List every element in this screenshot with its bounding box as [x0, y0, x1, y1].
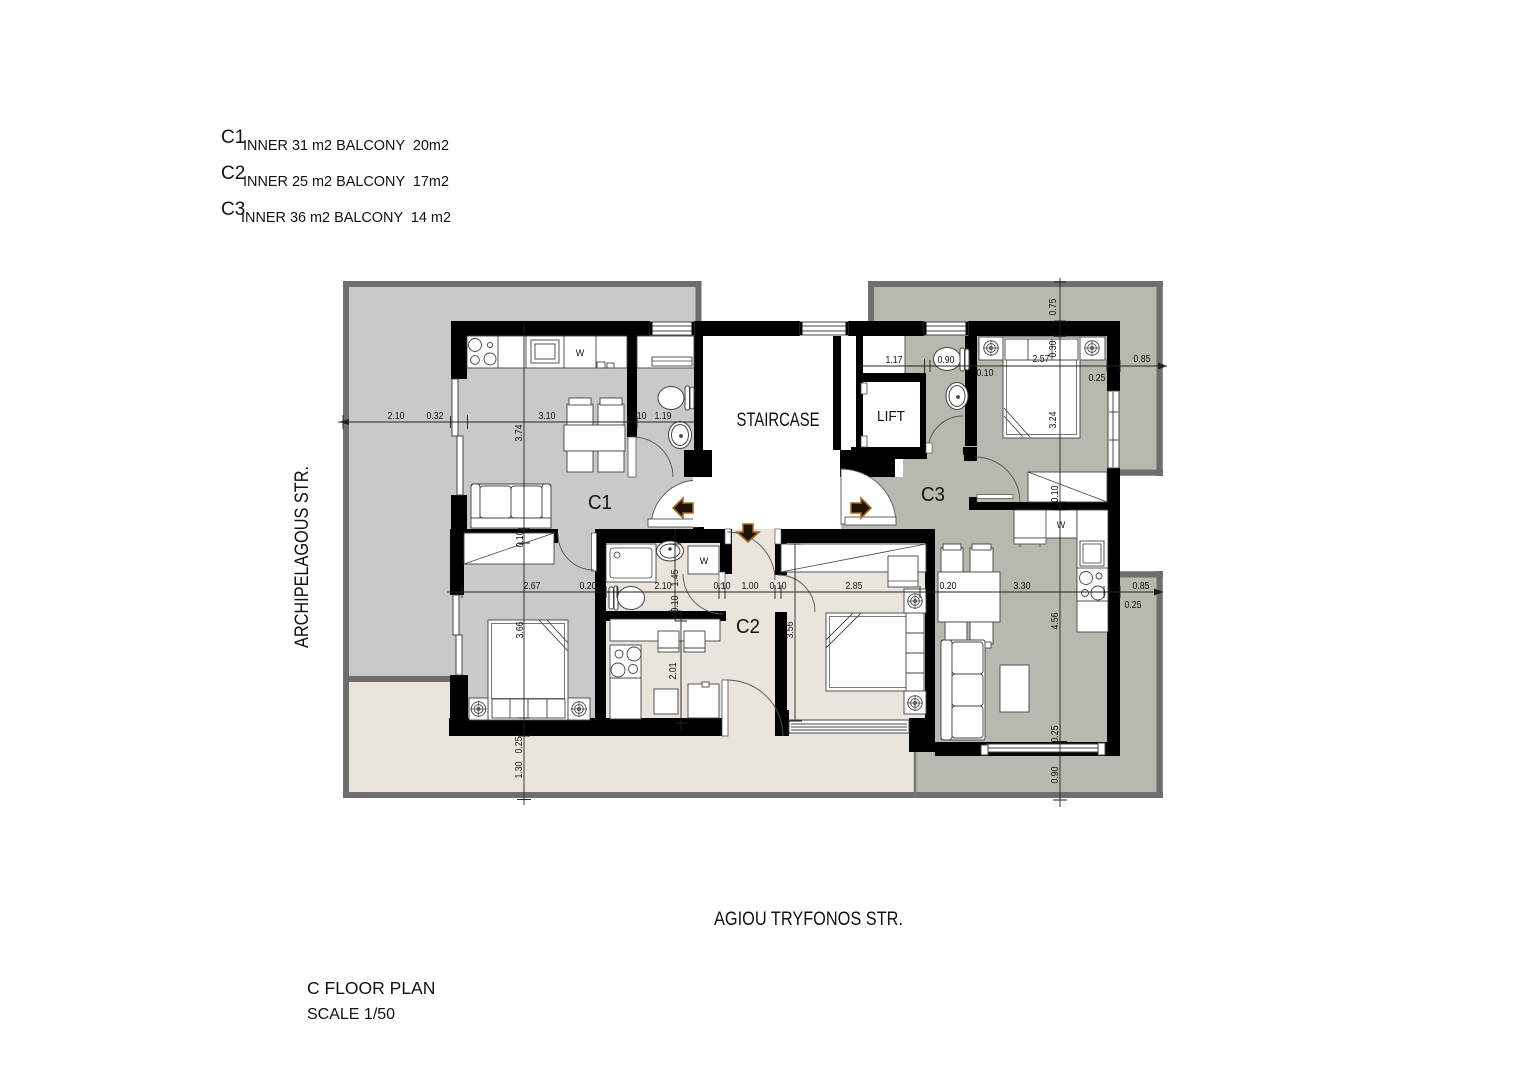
svg-text:C1: C1 — [221, 127, 245, 148]
svg-text:INNER 36 m2 BALCONY 14 m2: INNER 36 m2 BALCONY 14 m2 — [241, 209, 451, 226]
svg-text:2.01: 2.01 — [668, 662, 679, 679]
svg-text:0.90: 0.90 — [938, 355, 955, 366]
svg-text:0.30: 0.30 — [1048, 340, 1059, 357]
svg-text:0.85: 0.85 — [1134, 354, 1151, 365]
svg-text:3.10: 3.10 — [539, 411, 556, 422]
svg-text:C FLOOR PLAN: C FLOOR PLAN — [307, 978, 435, 998]
svg-text:1.17: 1.17 — [886, 355, 903, 366]
svg-text:1.00: 1.00 — [742, 581, 759, 592]
svg-text:0.25: 0.25 — [1125, 600, 1142, 611]
svg-text:0.25: 0.25 — [1050, 725, 1061, 742]
svg-text:W: W — [576, 348, 585, 358]
svg-text:C2: C2 — [736, 616, 760, 638]
svg-text:1.30: 1.30 — [514, 761, 525, 778]
svg-text:INNER 25 m2 BALCONY 17m2: INNER 25 m2 BALCONY 17m2 — [243, 173, 449, 190]
svg-text:C1: C1 — [588, 492, 612, 514]
svg-text:0.10: 0.10 — [1050, 485, 1061, 502]
svg-text:0.20: 0.20 — [940, 581, 957, 592]
svg-text:W: W — [700, 556, 709, 566]
svg-text:INNER 31 m2 BALCONY 20m2: INNER 31 m2 BALCONY 20m2 — [243, 137, 449, 154]
svg-text:3.56: 3.56 — [785, 621, 796, 638]
svg-text:1.45: 1.45 — [670, 569, 681, 586]
svg-text:0.10: 0.10 — [977, 368, 994, 379]
svg-text:3.24: 3.24 — [1048, 411, 1059, 428]
svg-text:0.85: 0.85 — [1133, 581, 1150, 592]
svg-text:ARCHIPELAGOUS STR.: ARCHIPELAGOUS STR. — [292, 466, 313, 648]
svg-text:0.90: 0.90 — [1050, 766, 1061, 783]
svg-text:SCALE 1/50: SCALE 1/50 — [307, 1006, 395, 1023]
svg-text:0.75: 0.75 — [1048, 298, 1059, 315]
svg-text:0.10: 0.10 — [714, 581, 731, 592]
svg-text:2.10: 2.10 — [388, 411, 405, 422]
svg-text:0.10: 0.10 — [515, 530, 526, 547]
svg-text:C3: C3 — [921, 484, 945, 506]
svg-text:LIFT: LIFT — [877, 408, 905, 425]
svg-text:0.10: 0.10 — [670, 595, 681, 612]
svg-text:STAIRCASE: STAIRCASE — [737, 410, 820, 431]
svg-text:AGIOU TRYFONOS STR.: AGIOU TRYFONOS STR. — [714, 909, 903, 930]
svg-text:2.67: 2.67 — [524, 581, 541, 592]
svg-text:3.30: 3.30 — [1014, 581, 1031, 592]
svg-text:0.20: 0.20 — [580, 581, 597, 592]
svg-text:0.32: 0.32 — [427, 411, 444, 422]
svg-text:4.56: 4.56 — [1050, 612, 1061, 629]
svg-text:W: W — [1057, 520, 1066, 530]
svg-text:0.10: 0.10 — [630, 411, 647, 422]
svg-text:0.25: 0.25 — [514, 736, 525, 753]
svg-text:3.74: 3.74 — [514, 424, 525, 441]
svg-text:3.66: 3.66 — [515, 621, 526, 638]
svg-text:1.19: 1.19 — [655, 411, 672, 422]
svg-text:2.85: 2.85 — [846, 581, 863, 592]
svg-text:0.25: 0.25 — [1089, 373, 1106, 384]
svg-text:0.10: 0.10 — [770, 581, 787, 592]
svg-text:C2: C2 — [221, 163, 245, 184]
